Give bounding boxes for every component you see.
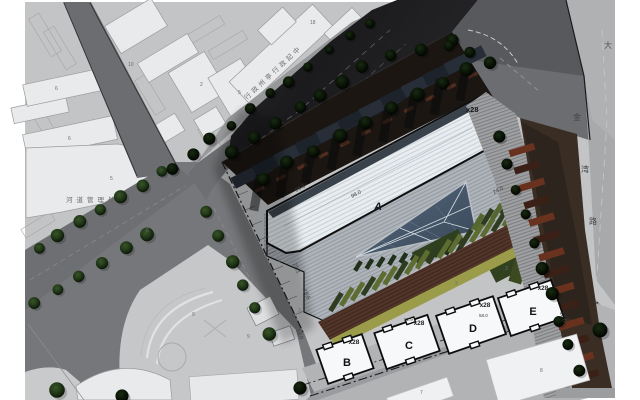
- svg-text:C: C: [405, 340, 413, 352]
- svg-text:路: 路: [589, 216, 597, 226]
- svg-text:E: E: [529, 306, 536, 318]
- svg-text:河道管理处: 河道管理处: [66, 195, 119, 204]
- svg-text:湾: 湾: [581, 164, 589, 174]
- svg-text:6: 6: [146, 228, 149, 234]
- svg-text:x28: x28: [349, 339, 360, 346]
- svg-text:2: 2: [200, 82, 203, 88]
- svg-text:10: 10: [128, 62, 134, 68]
- svg-text:3: 3: [505, 266, 508, 272]
- svg-text:9: 9: [192, 312, 195, 318]
- svg-text:9: 9: [247, 334, 250, 340]
- svg-text:6: 6: [55, 86, 58, 92]
- svg-text:8: 8: [540, 368, 543, 374]
- svg-text:x28: x28: [480, 302, 491, 309]
- svg-text:3: 3: [298, 308, 301, 314]
- svg-text:x28: x28: [466, 105, 479, 114]
- svg-text:D: D: [469, 323, 477, 335]
- svg-text:22.9: 22.9: [404, 317, 413, 322]
- svg-text:大: 大: [604, 40, 612, 50]
- svg-text:B: B: [343, 357, 351, 369]
- svg-text:18: 18: [310, 20, 316, 26]
- svg-text:x28: x28: [414, 320, 425, 327]
- svg-text:2: 2: [278, 258, 281, 264]
- svg-text:7: 7: [420, 390, 423, 396]
- svg-text:5: 5: [110, 176, 113, 182]
- svg-text:2: 2: [455, 281, 458, 287]
- svg-text:5: 5: [238, 90, 241, 96]
- svg-text:12: 12: [95, 26, 101, 32]
- svg-text:金: 金: [573, 112, 581, 122]
- svg-text:6: 6: [68, 136, 71, 142]
- svg-text:A: A: [373, 201, 382, 213]
- svg-text:58.0: 58.0: [479, 313, 488, 318]
